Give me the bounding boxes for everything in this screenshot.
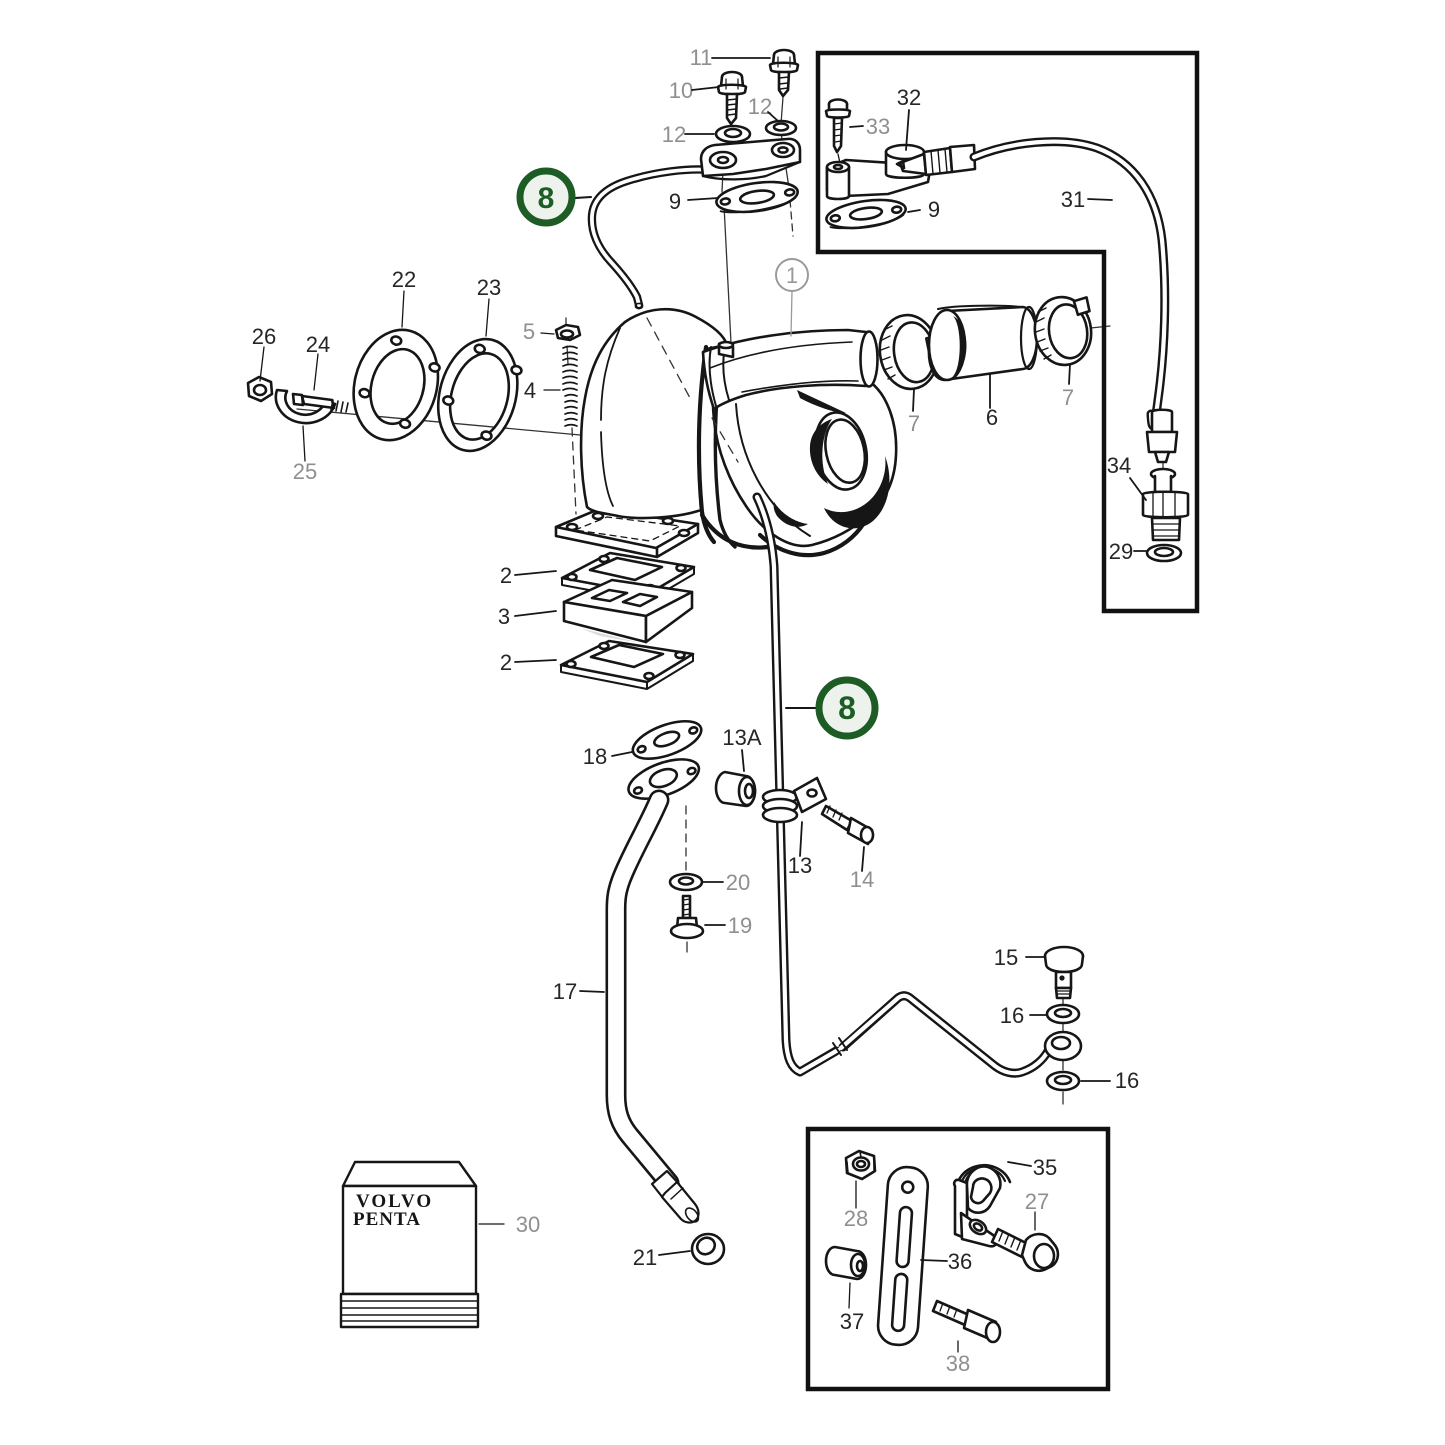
svg-text:37: 37 [840, 1309, 864, 1334]
svg-text:1: 1 [786, 263, 798, 288]
svg-text:20: 20 [726, 870, 750, 895]
svg-text:32: 32 [897, 85, 921, 110]
svg-text:27: 27 [1025, 1189, 1049, 1214]
svg-text:7: 7 [908, 411, 920, 436]
svg-text:31: 31 [1061, 187, 1085, 212]
svg-text:36: 36 [948, 1249, 972, 1274]
svg-text:24: 24 [306, 332, 330, 357]
svg-text:26: 26 [252, 324, 276, 349]
svg-text:5: 5 [523, 319, 535, 344]
svg-text:19: 19 [728, 913, 752, 938]
svg-text:22: 22 [392, 267, 416, 292]
svg-text:17: 17 [553, 979, 577, 1004]
svg-text:15: 15 [994, 945, 1018, 970]
svg-text:38: 38 [946, 1351, 970, 1376]
svg-text:30: 30 [516, 1212, 540, 1237]
svg-text:9: 9 [669, 189, 681, 214]
svg-text:29: 29 [1109, 539, 1133, 564]
svg-text:25: 25 [293, 459, 317, 484]
svg-text:2: 2 [500, 650, 512, 675]
svg-text:7: 7 [1062, 385, 1074, 410]
svg-text:16: 16 [1000, 1003, 1024, 1028]
svg-text:21: 21 [633, 1245, 657, 1270]
svg-text:33: 33 [866, 114, 890, 139]
svg-text:4: 4 [524, 378, 536, 403]
svg-text:16: 16 [1115, 1068, 1139, 1093]
svg-text:10: 10 [669, 78, 693, 103]
svg-text:6: 6 [986, 405, 998, 430]
svg-text:13A: 13A [722, 725, 761, 750]
svg-text:2: 2 [500, 563, 512, 588]
svg-text:28: 28 [844, 1206, 868, 1231]
svg-text:PENTA: PENTA [353, 1209, 421, 1230]
svg-text:12: 12 [662, 122, 686, 147]
svg-text:9: 9 [928, 197, 940, 222]
svg-text:35: 35 [1033, 1155, 1057, 1180]
svg-text:8: 8 [538, 182, 555, 215]
svg-text:8: 8 [838, 690, 856, 726]
svg-text:11: 11 [690, 45, 713, 70]
svg-text:12: 12 [748, 94, 772, 119]
svg-text:23: 23 [477, 275, 501, 300]
svg-text:34: 34 [1107, 453, 1131, 478]
svg-text:3: 3 [498, 604, 510, 629]
svg-text:18: 18 [583, 744, 607, 769]
